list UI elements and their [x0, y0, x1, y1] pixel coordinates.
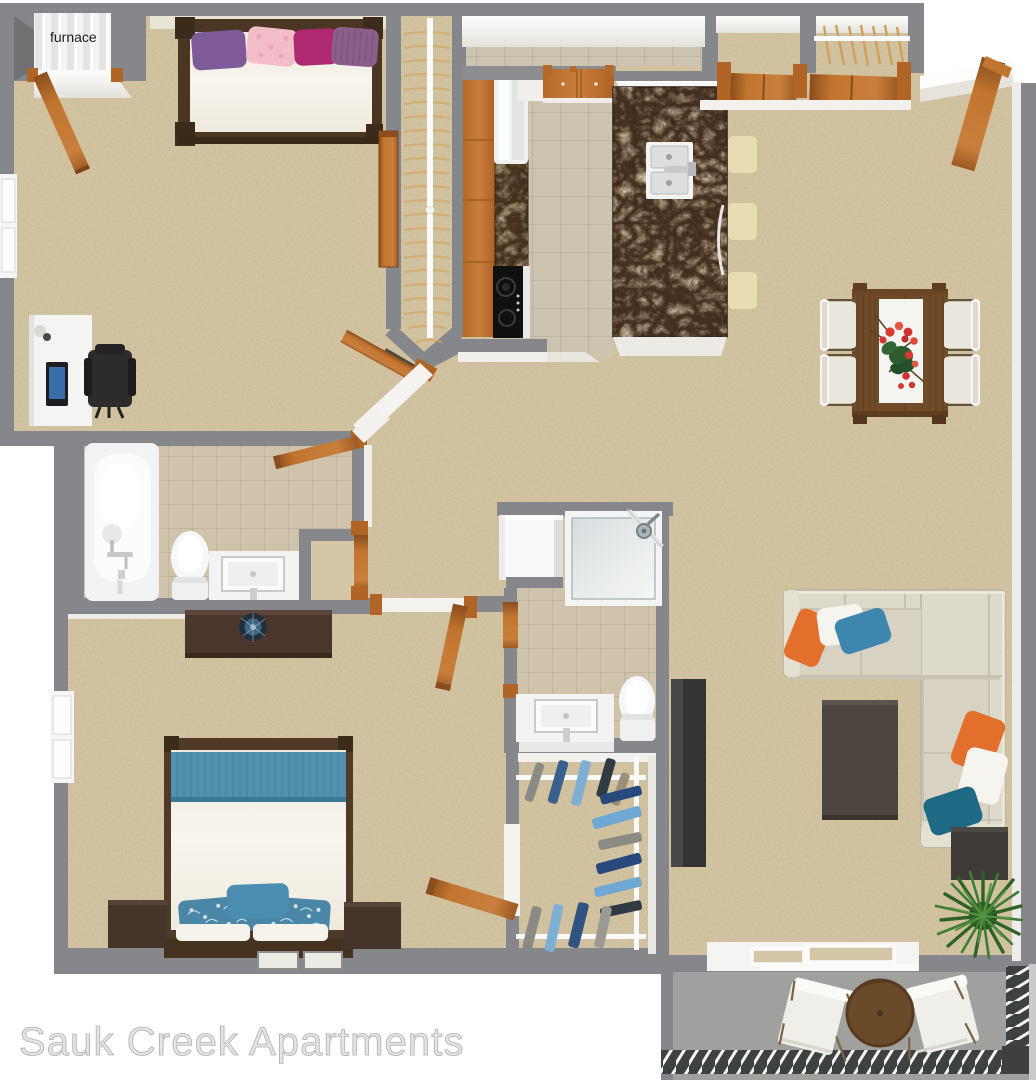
svg-text:Sauk Creek Apartments: Sauk Creek Apartments	[19, 1020, 465, 1064]
svg-text:furnace: furnace	[50, 29, 97, 45]
